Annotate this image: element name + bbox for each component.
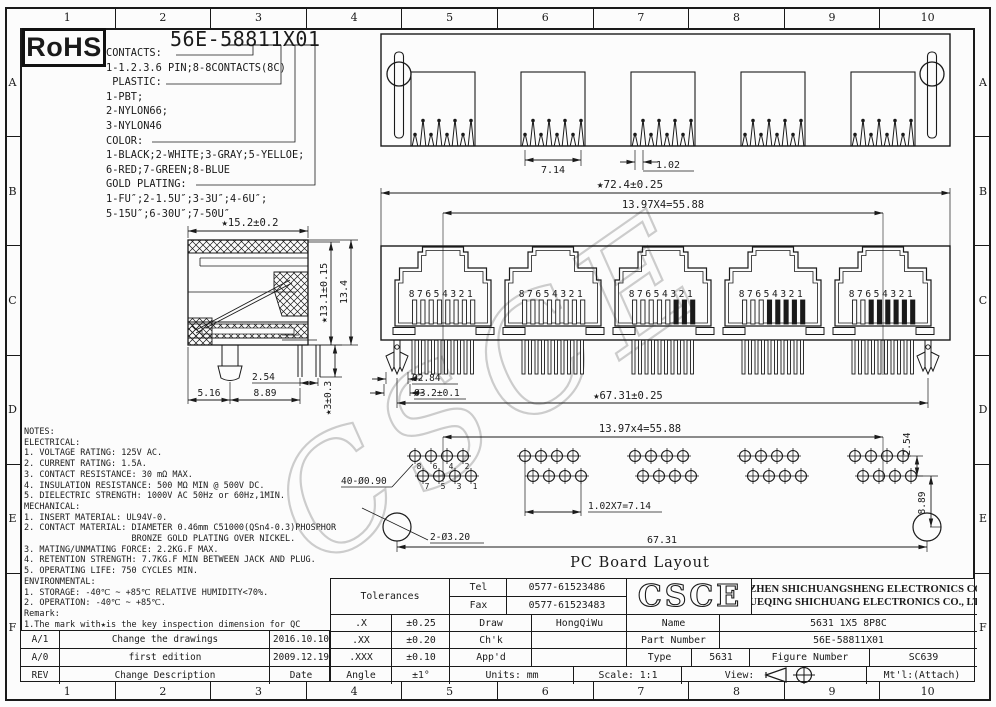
titleblock-cell-mtl: Mt'l:(Attach) <box>866 666 977 684</box>
zone-label-2: 2 <box>115 7 211 28</box>
zone-label-6: 6 <box>497 7 593 28</box>
zone-label-1: 1 <box>20 7 115 28</box>
text-line: 3. CONTACT RESISTANCE: 30 mΩ MAX. <box>24 470 336 481</box>
titleblock-cell-appd_label: App'd <box>449 648 532 666</box>
zone-label-D: D <box>975 355 991 464</box>
titleblock-cell-appd <box>531 648 627 666</box>
company-line2: YUEQING SHICHUANG ELECTRONICS CO., LTD <box>751 596 977 609</box>
titleblock-cell-angle_label: Angle <box>331 666 391 684</box>
zone-label-D: D <box>5 355 20 464</box>
zone-label-8: 8 <box>688 7 784 28</box>
titleblock-cell-company: SHENZHEN SHICHUANGSHENG ELECTRONICS CO.,… <box>751 579 977 614</box>
text-line: ENVIRONMENTAL: <box>24 577 336 588</box>
text-line: 1.The mark with★is the key inspection di… <box>24 620 336 631</box>
titleblock-cell-scale: Scale: 1:1 <box>573 666 682 684</box>
text-line: 1-1.2.3.6 PIN;8-8CONTACTS(8C) <box>106 61 304 76</box>
revision-cell-date: Date <box>269 666 332 684</box>
text-line: 5. DIELECTRIC STRENGTH: 1000V AC 50Hz or… <box>24 491 336 502</box>
view-label: View: <box>725 670 755 681</box>
revision-cell-rev: REV <box>21 666 59 684</box>
zone-label-E: E <box>5 464 20 573</box>
text-line: COLOR: <box>106 134 304 149</box>
rohs-badge: RoHS <box>22 28 106 67</box>
title-block: TolerancesTel0577-61523486Fax0577-615234… <box>330 578 975 682</box>
revision-cell-date: 2016.10.10 <box>269 631 332 648</box>
titleblock-cell-chk <box>531 631 627 649</box>
titleblock-cell-type_label: Type <box>626 648 692 666</box>
zone-label-4: 4 <box>306 7 402 28</box>
zone-strip-bottom: 12345678910 <box>20 682 975 701</box>
titleblock-cell-tol_xx_label: .XX <box>331 631 391 649</box>
text-line: 1. INSERT MATERIAL: UL94V-0. <box>24 513 336 524</box>
titleblock-cell-tol_xxx_label: .XXX <box>331 648 391 666</box>
text-line: ELECTRICAL: <box>24 438 336 449</box>
text-line: Remark: <box>24 609 336 620</box>
titleblock-cell-name: 5631 1X5 8P8C <box>719 614 977 632</box>
titleblock-cell-tel_label: Tel <box>449 579 507 596</box>
text-line: 6-RED;7-GREEN;8-BLUE <box>106 163 304 178</box>
text-line: 1-PBT; <box>106 90 304 105</box>
titleblock-cell-tol_xx: ±0.20 <box>391 631 450 649</box>
text-line: 4. INSULATION RESISTANCE: 500 MΩ MIN @ 5… <box>24 481 336 492</box>
titleblock-cell-angle: ±1° <box>391 666 450 684</box>
csce-logo: CSCE <box>630 580 750 612</box>
titleblock-cell-tol_x_label: .X <box>331 614 391 632</box>
zone-label-B: B <box>975 136 991 245</box>
notes-block: NOTES:ELECTRICAL:1. VOLTAGE RATING: 125V… <box>24 427 336 630</box>
revision-table: A/1Change the drawings2016.10.10A/0first… <box>20 630 330 682</box>
text-line: 1-BLACK;2-WHITE;3-GRAY;5-YELLOE; <box>106 148 304 163</box>
titleblock-cell-fax_label: Fax <box>449 596 507 614</box>
zone-label-E: E <box>975 464 991 573</box>
zone-label-8: 8 <box>688 682 784 701</box>
text-line: 2. CONTACT MATERIAL: DIAMETER 0.46mm C51… <box>24 523 336 534</box>
titleblock-cell-part_number_label: Part Number <box>626 631 720 649</box>
projection-symbol-icon <box>762 666 824 684</box>
zone-label-C: C <box>5 245 20 354</box>
text-line: 5. OPERATING LIFE: 750 CYCLES MIN. <box>24 566 336 577</box>
text-line: 4. RETENTION STRENGTH: 7.7KG.F MIN BETWE… <box>24 555 336 566</box>
titleblock-cell-name_label: Name <box>626 614 720 632</box>
zone-strip-right: ABCDEF <box>975 28 991 682</box>
revision-cell-description: Change the drawings <box>59 631 270 648</box>
ordering-legend: CONTACTS:1-1.2.3.6 PIN;8-8CONTACTS(8C) P… <box>106 46 304 221</box>
text-line: 3. MATING/UNMATING FORCE: 2.2KG.F MAX. <box>24 545 336 556</box>
zone-label-B: B <box>5 136 20 245</box>
text-line: GOLD PLATING: <box>106 177 304 192</box>
zone-label-F: F <box>5 573 20 682</box>
zone-label-9: 9 <box>784 682 880 701</box>
zone-label-3: 3 <box>210 7 306 28</box>
zone-label-A: A <box>975 28 991 136</box>
titleblock-cell-logo: CSCE <box>626 579 752 614</box>
zone-label-4: 4 <box>306 682 402 701</box>
zone-label-A: A <box>5 28 20 136</box>
zone-label-7: 7 <box>593 7 689 28</box>
revision-cell-description: first edition <box>59 648 270 666</box>
text-line: 1. VOLTAGE RATING: 125V AC. <box>24 448 336 459</box>
zone-label-6: 6 <box>497 682 593 701</box>
revision-cell-date: 2009.12.19 <box>269 648 332 666</box>
zone-label-F: F <box>975 573 991 682</box>
zone-label-10: 10 <box>879 7 975 28</box>
titleblock-cell-chk_label: Ch'k <box>449 631 532 649</box>
zone-label-1: 1 <box>20 682 115 701</box>
text-line: 1-FU″;2-1.5U″;3-3U″;4-6U″; <box>106 192 304 207</box>
text-line: 1. STORAGE: -40℃ ~ +85℃ RELATIVE HUMIDIT… <box>24 588 336 599</box>
text-line: BRONZE GOLD PLATING OVER NICKEL. <box>24 534 336 545</box>
zone-label-5: 5 <box>401 7 497 28</box>
titleblock-cell-tol_x: ±0.25 <box>391 614 450 632</box>
titleblock-cell-figure: SC639 <box>869 648 977 666</box>
zone-label-5: 5 <box>401 682 497 701</box>
text-line: CONTACTS: <box>106 46 304 61</box>
titleblock-cell-type: 5631 <box>691 648 750 666</box>
text-line: 5-15U″;6-30U″;7-50U″ <box>106 207 304 222</box>
zone-strip-top: 12345678910 <box>20 7 975 28</box>
zone-label-10: 10 <box>879 682 975 701</box>
revision-cell-rev: A/0 <box>21 648 59 666</box>
zone-label-3: 3 <box>210 682 306 701</box>
zone-label-C: C <box>975 245 991 354</box>
titleblock-cell-figure_label: Figure Number <box>749 648 870 666</box>
titleblock-cell-fax: 0577-61523483 <box>506 596 627 614</box>
company-line1: SHENZHEN SHICHUANGSHENG ELECTRONICS CO.,… <box>751 583 977 596</box>
titleblock-cell-tol_xxx: ±0.10 <box>391 648 450 666</box>
revision-cell-rev: A/1 <box>21 631 59 648</box>
zone-label-9: 9 <box>784 7 880 28</box>
titleblock-cell-part_number: 56E-58811X01 <box>719 631 977 649</box>
titleblock-cell-draw: HongQiWu <box>531 614 627 632</box>
titleblock-cell-tel: 0577-61523486 <box>506 579 627 596</box>
zone-label-7: 7 <box>593 682 689 701</box>
text-line: NOTES: <box>24 427 336 438</box>
text-line: 3-NYLON46 <box>106 119 304 134</box>
titleblock-cell-units: Units: mm <box>449 666 574 684</box>
titleblock-cell-draw_label: Draw <box>449 614 532 632</box>
engineering-drawing-sheet: 12345678910 12345678910 ABCDEF ABCDEF CS… <box>0 0 996 707</box>
text-line: 2-NYLON66; <box>106 104 304 119</box>
titleblock-cell-tolerances_label: Tolerances <box>331 579 449 614</box>
text-line: 2. CURRENT RATING: 1.5A. <box>24 459 336 470</box>
csce-logo-text: CSCE <box>637 580 741 612</box>
text-line: PLASTIC: <box>106 75 304 90</box>
zone-strip-left: ABCDEF <box>5 28 20 682</box>
revision-cell-description: Change Description <box>59 666 270 684</box>
titleblock-cell-view: View: <box>681 666 867 684</box>
text-line: 2. OPERATION: -40℃ ~ +85℃. <box>24 598 336 609</box>
text-line: MECHANICAL: <box>24 502 336 513</box>
zone-label-2: 2 <box>115 682 211 701</box>
